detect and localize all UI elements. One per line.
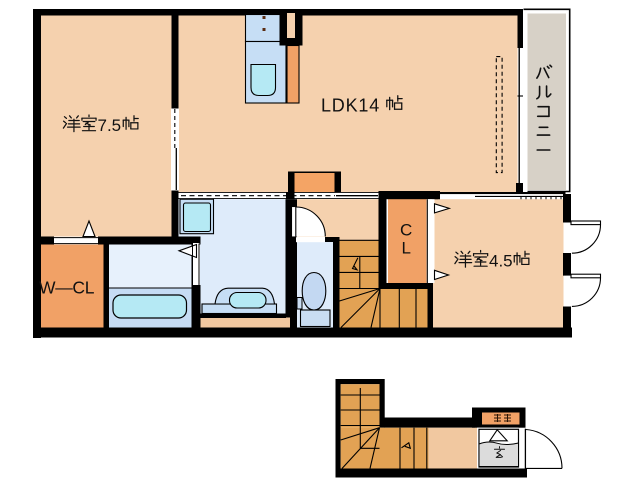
svg-text:C: C (400, 220, 412, 239)
svg-text:W—CL: W—CL (39, 278, 95, 298)
svg-text:LDK14: LDK14 (321, 96, 380, 116)
svg-text:4.5: 4.5 (489, 252, 513, 271)
svg-text:L: L (402, 239, 411, 258)
svg-text:7.5: 7.5 (98, 116, 122, 135)
